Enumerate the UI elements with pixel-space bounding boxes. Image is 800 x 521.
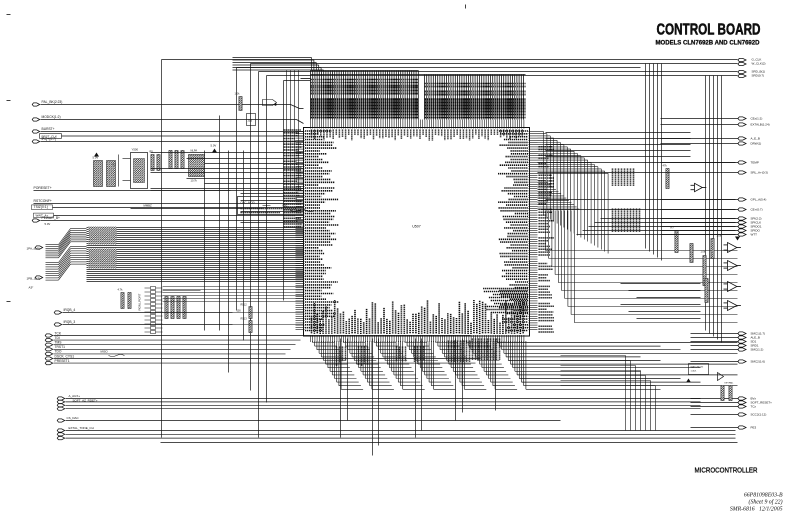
svg-text:Y500: Y500	[132, 148, 139, 152]
svg-text:W_CLK(2): W_CLK(2)	[752, 62, 766, 66]
svg-text:CEx(1:2): CEx(1:2)	[751, 117, 763, 121]
svg-text:PORESET+: PORESET+	[34, 186, 52, 190]
svg-text:A_E_B: A_E_B	[751, 137, 760, 141]
svg-text:RSTCONF+: RSTCONF+	[34, 199, 52, 203]
svg-text:IRQB_3: IRQB_3	[64, 320, 76, 324]
svg-text:IRQ+(0:7): IRQ+(0:7)	[42, 137, 57, 141]
svg-text:R7: R7	[671, 226, 675, 230]
svg-text:TCx: TCx	[751, 405, 757, 409]
svg-text:10.7k: 10.7k	[191, 179, 198, 183]
svg-text:EXTAL_TONE_CH: EXTAL_TONE_CH	[69, 426, 94, 430]
svg-text:5.0V: 5.0V	[45, 222, 51, 226]
svg-text:EXTALB(1:24): EXTALB(1:24)	[751, 123, 770, 127]
svg-text:R5: R5	[150, 150, 154, 154]
svg-text:WATCHDOG: WATCHDOG	[691, 366, 704, 369]
svg-text:PRESET1: PRESET1	[55, 359, 70, 363]
svg-text:SMC(1:2): SMC(1:2)	[751, 348, 764, 352]
svg-text:SMC2(1:6): SMC2(1:6)	[751, 360, 766, 364]
svg-text:DRW(1): DRW(1)	[751, 142, 762, 146]
svg-text:TRST1: TRST1	[55, 345, 66, 349]
svg-text:TEMP: TEMP	[751, 161, 759, 165]
svg-text:TDI: TDI	[55, 336, 60, 340]
svg-text:CS_DAC: CS_DAC	[67, 416, 80, 420]
svg-text:NLPA: NLPA	[191, 149, 198, 153]
svg-text:PAL_BK(2:23): PAL_BK(2:23)	[42, 100, 63, 104]
svg-text:DSCK_CYS1: DSCK_CYS1	[55, 354, 75, 358]
svg-text:OSC_MOD: OSC_MOD	[241, 201, 255, 205]
svg-text:66P81098E03-B: 66P81098E03-B	[744, 493, 783, 499]
svg-text:SRD(0:7): SRD(0:7)	[752, 74, 765, 78]
svg-text:MODCK(1:2): MODCK(1:2)	[42, 115, 61, 119]
svg-text:R512: R512	[241, 303, 248, 307]
svg-text:(Sheet 9 of 22): (Sheet 9 of 22)	[749, 499, 783, 506]
svg-text:PE3: PE3	[751, 426, 757, 430]
svg-text:IRQB_4: IRQB_4	[64, 308, 76, 312]
svg-text:SMR-6816 12/1/2005: SMR-6816 12/1/2005	[730, 507, 783, 513]
svg-text:1.0k: 1.0k	[235, 92, 241, 96]
svg-text:BURST+: BURST+	[42, 127, 55, 131]
svg-text:C1: C1	[113, 163, 117, 167]
svg-text:100: 100	[237, 310, 242, 313]
svg-text:KEYFAIL: KEYFAIL	[725, 382, 735, 385]
svg-text:MMBZ: MMBZ	[144, 204, 153, 208]
svg-text:ROM_PORT: ROM_PORT	[138, 293, 142, 310]
svg-text:PEWAIT_B+: PEWAIT_B+	[42, 216, 61, 220]
svg-text:SRL_A+(0:3): SRL_A+(0:3)	[751, 171, 768, 175]
svg-text:1PA_(0:5): 1PA_(0:5)	[27, 247, 40, 251]
svg-text:47k: 47k	[663, 164, 668, 168]
svg-text:WTT: WTT	[751, 233, 758, 237]
svg-text:TCK: TCK	[55, 331, 62, 335]
svg-text:TMS: TMS	[55, 341, 63, 345]
svg-text:J53: J53	[248, 119, 253, 123]
svg-text:TSIZ(0:1): TSIZ(0:1)	[34, 205, 48, 209]
svg-text:MODELS CLN7692B AND CLN7692D: MODELS CLN7692B AND CLN7692D	[656, 40, 761, 47]
svg-text:R513: R513	[241, 317, 248, 321]
svg-text:SCC2(1:12): SCC2(1:12)	[751, 413, 767, 417]
svg-text:1.0k/1: 1.0k/1	[691, 371, 698, 373]
svg-text:5.0V: 5.0V	[211, 144, 217, 148]
svg-text:4.7k: 4.7k	[118, 288, 124, 292]
svg-text:MICROCONTROLLER: MICROCONTROLLER	[695, 466, 758, 475]
svg-text:TDO: TDO	[55, 350, 62, 354]
svg-text:1.0k: 1.0k	[701, 251, 706, 254]
svg-text:SOFT_AZ_RDET+: SOFT_AZ_RDET+	[73, 399, 98, 403]
svg-text:A3*: A3*	[29, 286, 35, 290]
svg-text:MISO: MISO	[101, 350, 109, 354]
svg-text:1PB_(2:7): 1PB_(2:7)	[27, 277, 41, 281]
svg-text:U507: U507	[412, 225, 421, 229]
svg-text:CE+(0:7): CE+(0:7)	[751, 208, 763, 212]
svg-text:A_AUX+: A_AUX+	[69, 394, 81, 398]
svg-text:GPL_A(5:4): GPL_A(5:4)	[751, 198, 767, 202]
svg-text:CONTROL BOARD: CONTROL BOARD	[657, 22, 761, 39]
svg-text:1.0k: 1.0k	[717, 235, 722, 238]
svg-text:FB1: FB1	[283, 204, 289, 208]
